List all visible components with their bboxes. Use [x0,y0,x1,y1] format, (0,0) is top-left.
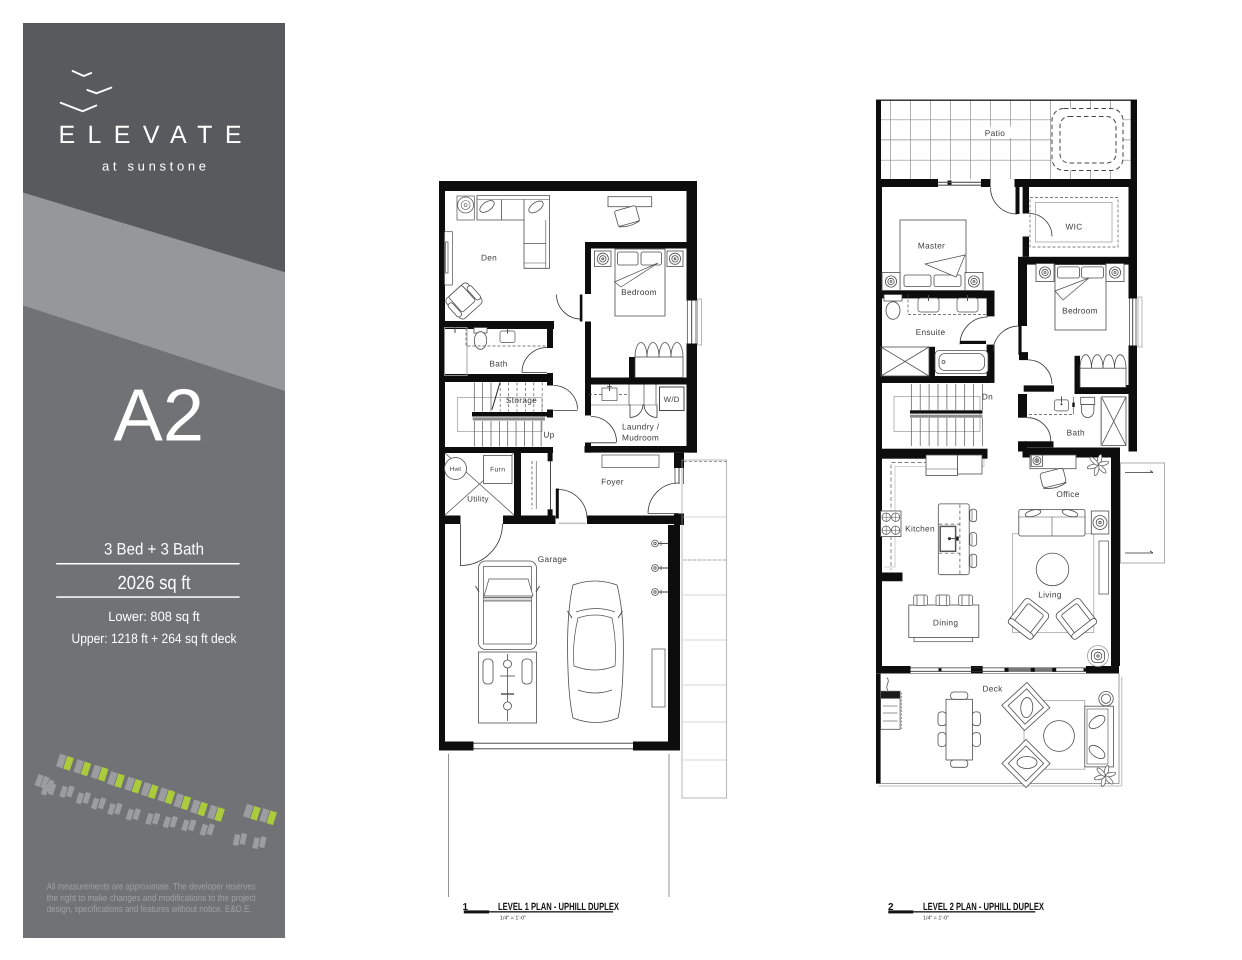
svg-text:Living: Living [1038,590,1062,600]
svg-text:W/D: W/D [664,395,680,404]
svg-text:Bath: Bath [489,359,507,369]
svg-text:Ensuite: Ensuite [916,327,946,337]
svg-text:Patio: Patio [985,128,1005,138]
svg-text:Den: Den [481,253,497,263]
svg-text:WIC: WIC [1065,222,1082,232]
svg-text:Foyer: Foyer [601,477,624,487]
svg-text:Dn: Dn [982,392,993,402]
svg-text:Up: Up [543,430,554,440]
svg-text:Furn: Furn [490,467,505,474]
svg-text:1/4" = 1'-0": 1/4" = 1'-0" [923,915,949,922]
svg-text:Master: Master [918,241,945,251]
svg-text:Bath: Bath [1067,428,1085,438]
svg-text:1/4" = 1'-0": 1/4" = 1'-0" [500,915,526,922]
svg-text:Garage: Garage [538,554,568,564]
svg-text:Storage: Storage [506,395,537,405]
svg-text:Kitchen: Kitchen [905,524,935,534]
svg-text:Utility: Utility [467,495,489,504]
svg-text:Bedroom: Bedroom [621,287,657,297]
svg-text:Laundry /: Laundry / [622,422,660,432]
svg-text:Mudroom: Mudroom [622,433,659,443]
svg-text:Hwt: Hwt [450,466,462,473]
svg-text:Dining: Dining [933,618,958,628]
svg-text:Bedroom: Bedroom [1062,306,1098,316]
svg-text:Deck: Deck [982,684,1003,694]
svg-text:Office: Office [1056,489,1079,499]
